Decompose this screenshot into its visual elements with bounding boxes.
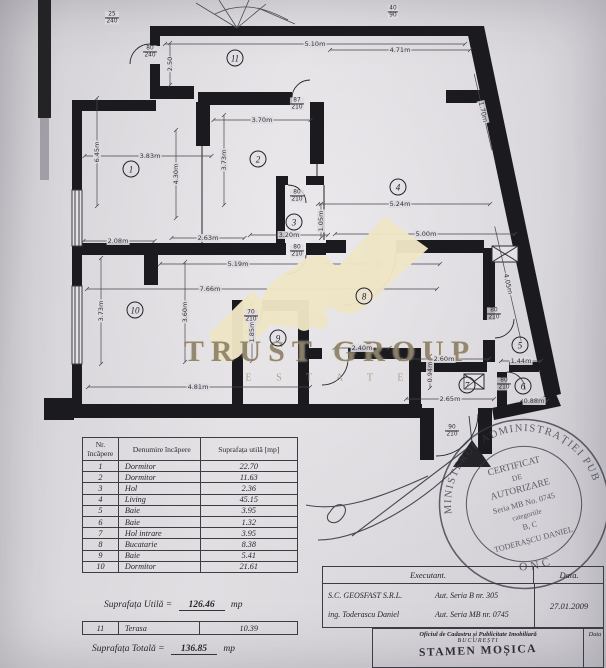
- room-number-4: 4: [390, 179, 407, 196]
- room-nr-cell: 9: [83, 550, 119, 561]
- room-nr-cell: 5: [83, 505, 119, 516]
- room-area-cell: 2.36: [200, 483, 297, 494]
- terasa-table: 11 Terasa 10.39: [82, 621, 298, 635]
- room-area-cell: 1.32: [200, 516, 297, 527]
- room-name-cell: Baie: [118, 505, 200, 516]
- dimension-label: 1.70m: [477, 100, 490, 124]
- room-nr-cell: 6: [83, 516, 119, 527]
- room-area-cell: 21.61: [200, 561, 297, 572]
- terasa-value: 10.39: [200, 622, 298, 635]
- stamp-inner-text: CERTIFICATDEAUTORIZARESeria MB No. 0745c…: [473, 451, 574, 555]
- suprafata-totala-line: Suprafața Totală = 136.85 mp: [92, 644, 235, 655]
- room-number-8: 8: [356, 288, 373, 305]
- suprafata-totala-unit: mp: [223, 644, 235, 654]
- dimension-label: 3.70m: [251, 116, 274, 124]
- dimension-label: 2.63m: [197, 234, 220, 242]
- dimension-label: 7.66m: [199, 285, 222, 293]
- dimension-label: 4.81m: [187, 383, 210, 391]
- room-area-cell: 11.63: [200, 472, 297, 483]
- dimension-label: 5.19m: [227, 260, 250, 268]
- door-size-label: 87210: [290, 97, 304, 110]
- executant-engineer-authorization: Aut. Seria MB nr. 0745: [435, 610, 509, 619]
- suprafata-utila-unit: mp: [231, 600, 243, 610]
- room-area-cell: 5.41: [200, 550, 297, 561]
- cadastre-receiver-stamp: STAMEN MOȘICA: [373, 641, 583, 660]
- room-number-2: 2: [250, 151, 267, 168]
- door-size-label: 80240: [143, 45, 157, 58]
- room-number-6: 6: [515, 378, 532, 395]
- room-name-cell: Dormitor: [118, 461, 200, 472]
- plan-labels: 11123456789105.10m4.71m2.501.70m3.83m3.7…: [0, 0, 606, 470]
- area-table-header-nr: Nr. încăpere: [83, 438, 119, 461]
- executant-engineer: ing. Toderascu Daniel: [328, 610, 399, 619]
- dimension-label: 0.88m: [523, 397, 546, 405]
- area-table-row: 9Baie5.41: [83, 550, 298, 561]
- dimension-label: 6.45m: [93, 141, 101, 164]
- dimension-label: 2.08m: [107, 237, 130, 245]
- door-size-label: 80210: [290, 244, 304, 257]
- suprafata-utila-label: Suprafața Utilă =: [104, 600, 172, 610]
- dimension-label: 4.30m: [172, 163, 180, 186]
- room-name-cell: Baie: [118, 516, 200, 527]
- area-table-row: 6Baie1.32: [83, 516, 298, 527]
- dimension-label: 4.71m: [389, 46, 412, 54]
- area-table-header-suprafata: Suprafața utilă [mp]: [200, 438, 297, 461]
- dimension-label: 5.00m: [415, 230, 438, 238]
- room-name-cell: Living: [118, 494, 200, 505]
- room-number-5: 5: [512, 337, 529, 354]
- room-nr-cell: 8: [83, 539, 119, 550]
- area-table-row: 10Dormitor21.61: [83, 561, 298, 572]
- stamp-line: DE: [511, 472, 524, 483]
- room-number-11: 11: [227, 50, 244, 67]
- dimension-label: 2.50: [166, 56, 174, 72]
- dimension-label: 3.20m: [278, 231, 301, 239]
- svg-text:ONC: ONC: [516, 553, 555, 577]
- dimension-label: 3.83m: [139, 152, 162, 160]
- area-table-header-denumire: Denumire încăpere: [118, 438, 200, 461]
- room-area-cell: 45.15: [200, 494, 297, 505]
- door-size-label: 4090: [388, 5, 398, 18]
- door-size-label: 80210: [290, 189, 304, 202]
- room-name-cell: Hol: [118, 483, 200, 494]
- room-nr-cell: 2: [83, 472, 119, 483]
- dimension-label: 1.85m: [248, 321, 256, 344]
- room-name-cell: Hol intrare: [118, 528, 200, 539]
- dimension-label: 2.40m: [351, 344, 374, 352]
- area-table-row: 4Living45.15: [83, 494, 298, 505]
- executant-company: S.C. GEOSFAST S.R.L.: [328, 591, 402, 600]
- room-name-cell: Dormitor: [118, 561, 200, 572]
- suprafata-totala-label: Suprafața Totală =: [92, 644, 165, 654]
- dimension-label: 2.60m: [433, 355, 456, 363]
- door-size-label: 25240: [105, 11, 119, 24]
- scanned-floor-plan-photo: TRUST GROUP E S T A T E 11123456789105.1…: [0, 0, 606, 668]
- room-nr-cell: 7: [83, 528, 119, 539]
- room-name-cell: Dormitor: [118, 472, 200, 483]
- room-name-cell: Bucatarie: [118, 539, 200, 550]
- room-nr-cell: 10: [83, 561, 119, 572]
- cadastre-office-main: Oficiul de Cadastru și Publicitate Imobi…: [373, 629, 584, 668]
- dimension-label: 3.73m: [97, 300, 105, 323]
- dimension-label: 2.65m: [439, 395, 462, 403]
- area-table-row: 7Hol intrare3.95: [83, 528, 298, 539]
- room-name-cell: Baie: [118, 550, 200, 561]
- area-table-row: 1Dormitor22.70: [83, 461, 298, 472]
- suprafata-totala-value: 136.85: [171, 644, 217, 655]
- room-nr-cell: 4: [83, 494, 119, 505]
- stamp-ring-bottom-text: ONC: [516, 553, 555, 577]
- room-number-7: 7: [459, 377, 476, 394]
- door-size-label: 80210: [487, 307, 501, 320]
- dimension-label: 3.60m: [181, 301, 189, 324]
- dimension-label: 1.44m: [510, 357, 533, 365]
- room-area-cell: 3.95: [200, 528, 297, 539]
- terasa-nr: 11: [83, 622, 119, 635]
- cadastre-office-title: Oficiul de Cadastru și Publicitate Imobi…: [373, 629, 583, 638]
- area-table-row: 3Hol2.36: [83, 483, 298, 494]
- cadastre-data-label: Data: [586, 631, 604, 638]
- room-area-cell: 8.38: [200, 539, 297, 550]
- door-size-label: 70210: [244, 309, 258, 322]
- door-size-label: 80210: [497, 377, 511, 390]
- area-table-row: 2Dormitor11.63: [83, 472, 298, 483]
- dimension-label: 0.94m: [426, 361, 434, 384]
- dimension-label: 1.05m: [317, 210, 325, 233]
- cadastre-office-box: Oficiul de Cadastru și Publicitate Imobi…: [372, 628, 604, 668]
- round-certification-stamp: MINISTERUL ADMINISTRAȚIEI PUBLICE ONC CE…: [428, 408, 606, 600]
- dimension-label: 4.05m: [502, 272, 515, 296]
- dimension-label: 5.24m: [389, 200, 412, 208]
- room-number-10: 10: [127, 302, 144, 319]
- dimension-label: 3.73m: [220, 149, 228, 172]
- dimension-label: 5.10m: [304, 40, 327, 48]
- area-table-row: 8Bucatarie8.38: [83, 539, 298, 550]
- suprafata-utila-line: Suprafața Utilă = 126.46 mp: [104, 600, 243, 611]
- room-nr-cell: 3: [83, 483, 119, 494]
- stamp-line: B, C: [521, 519, 538, 532]
- suprafata-utila-value: 126.46: [179, 600, 225, 611]
- area-table: Nr. încăpere Denumire încăpere Suprafața…: [82, 437, 298, 573]
- room-area-cell: 3.95: [200, 505, 297, 516]
- room-number-1: 1: [123, 161, 140, 178]
- room-nr-cell: 1: [83, 461, 119, 472]
- area-table-row: 5Baie3.95: [83, 505, 298, 516]
- room-area-cell: 22.70: [200, 461, 297, 472]
- room-number-9: 9: [270, 330, 287, 347]
- terasa-name: Terasa: [118, 622, 200, 635]
- room-number-3: 3: [286, 214, 303, 231]
